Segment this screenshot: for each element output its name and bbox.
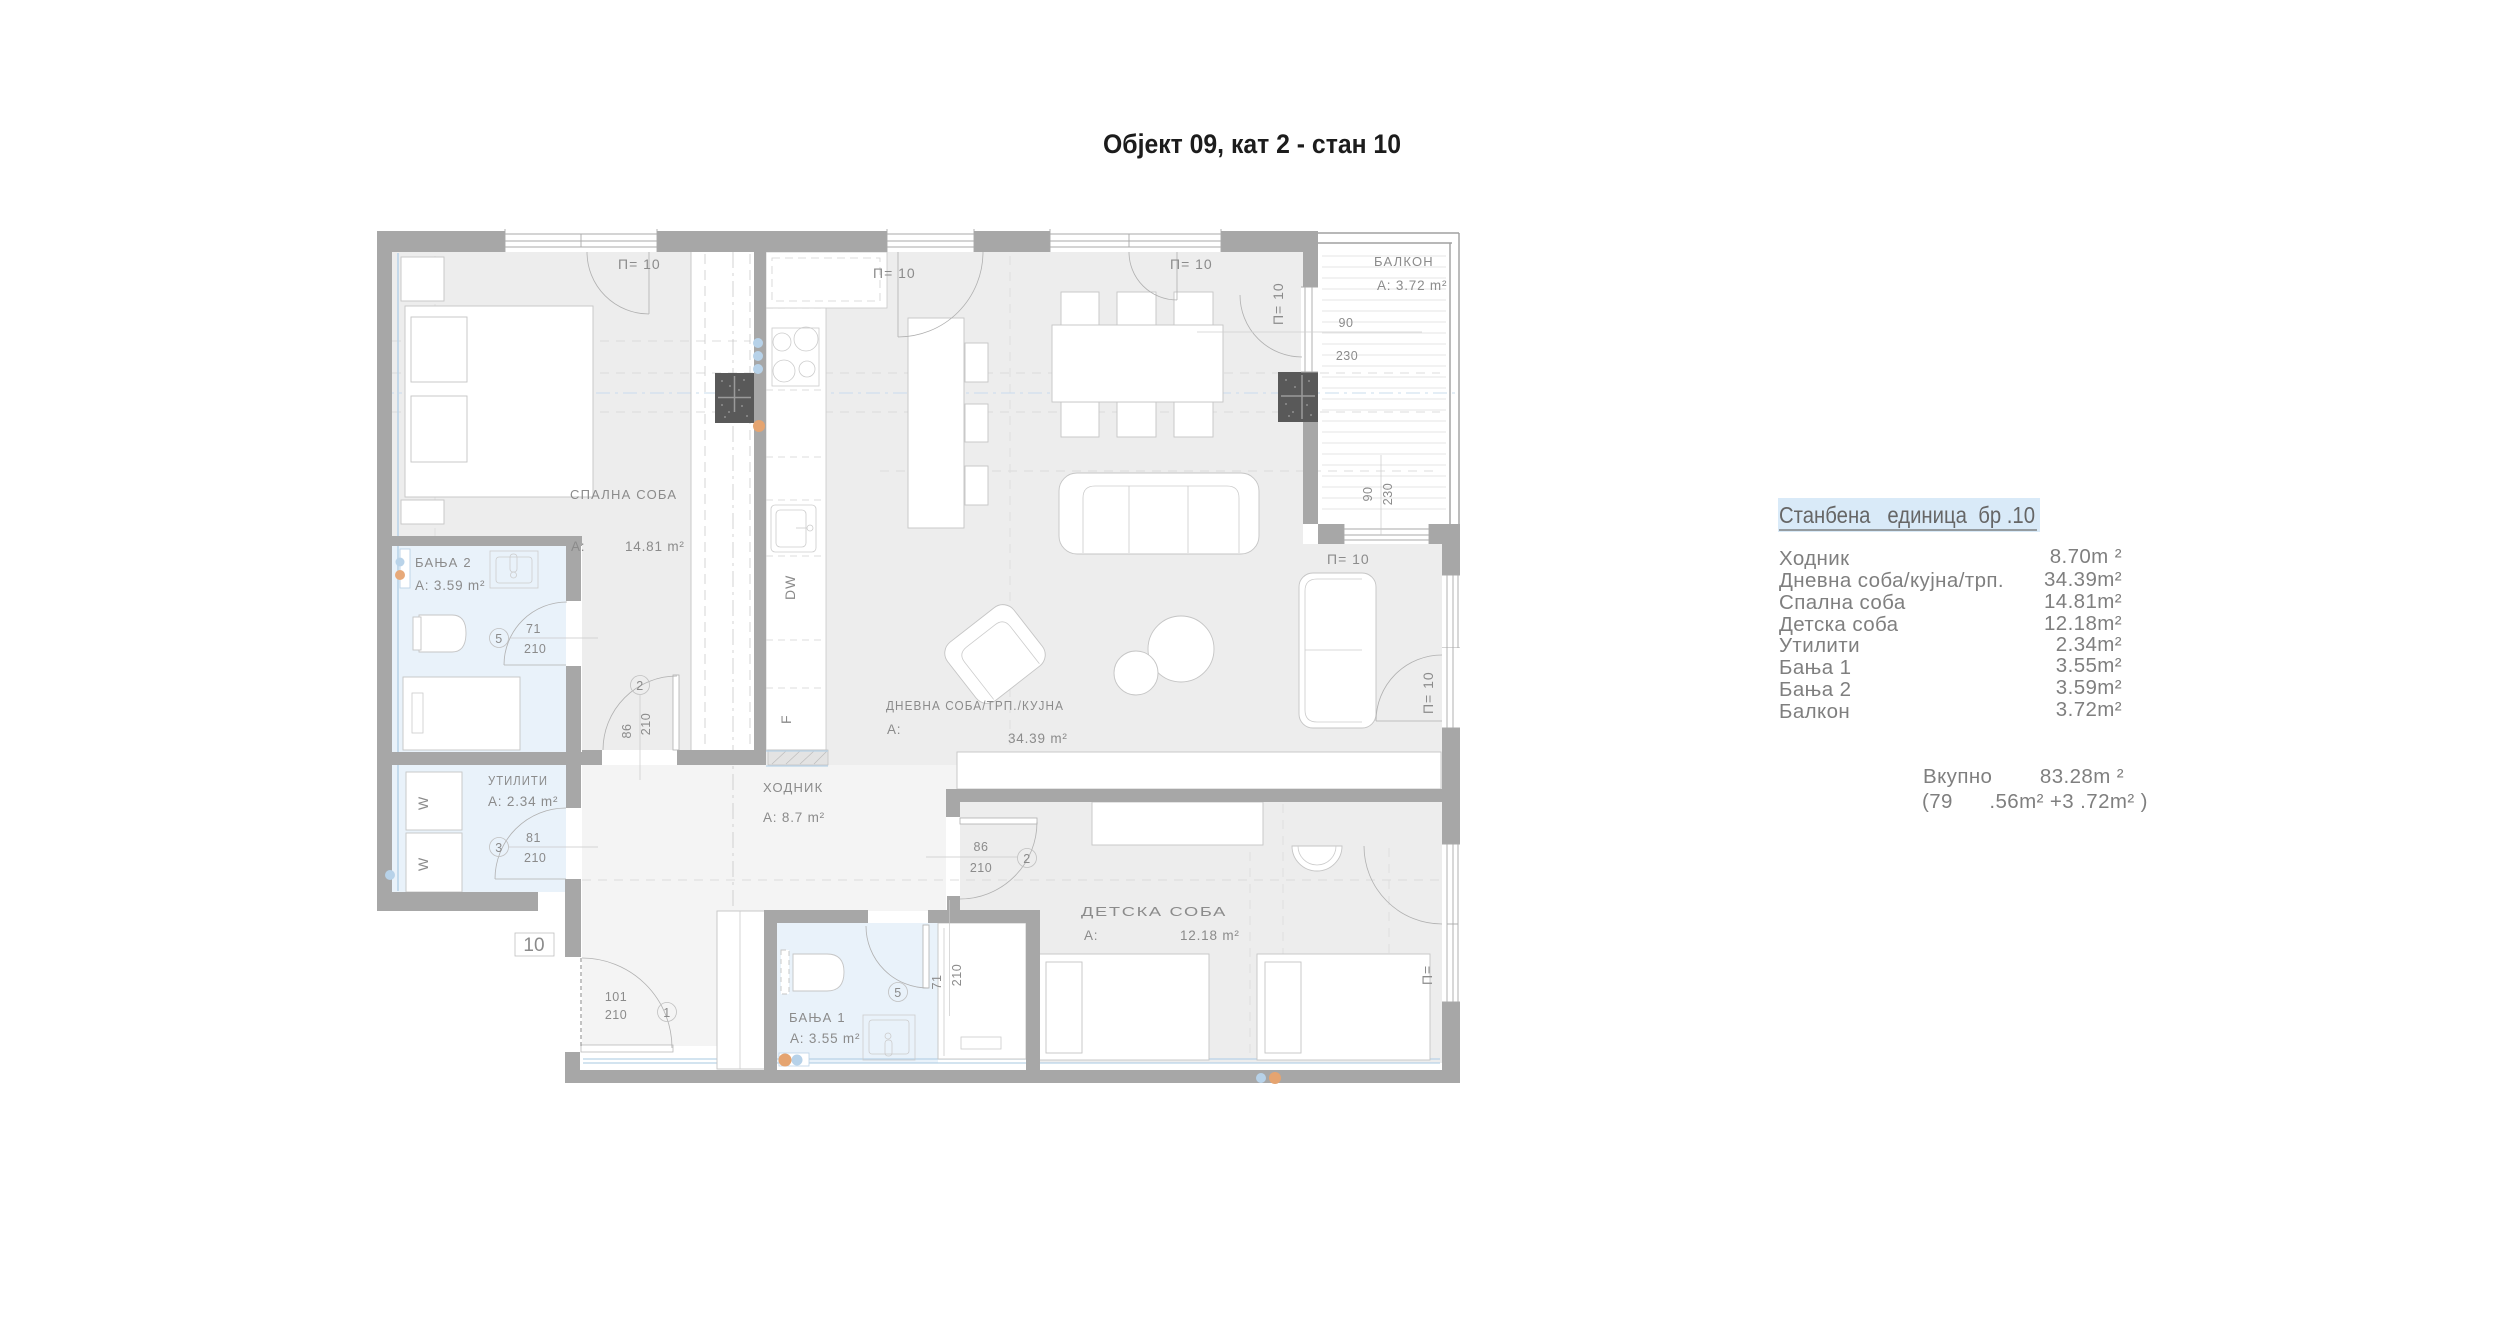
svg-text:230: 230 — [1336, 349, 1358, 363]
svg-text:Станбена единица бр .10: Станбена единица бр .10 — [1779, 502, 2035, 528]
svg-text:W: W — [415, 857, 431, 871]
svg-text:A: 3.59 m²: A: 3.59 m² — [415, 578, 485, 593]
svg-text:A: 8.7 m²: A: 8.7 m² — [763, 810, 825, 825]
svg-text:П= 10: П= 10 — [1170, 256, 1213, 272]
svg-text:86: 86 — [974, 840, 989, 854]
svg-text:A: 3.72 m²: A: 3.72 m² — [1377, 278, 1447, 293]
svg-text:210: 210 — [524, 642, 546, 656]
svg-text:СПАЛНА СОБА: СПАЛНА СОБА — [570, 487, 677, 502]
svg-text:DW: DW — [782, 575, 798, 600]
svg-text:A: 2.34 m²: A: 2.34 m² — [488, 794, 558, 809]
svg-text:210: 210 — [639, 713, 653, 735]
svg-text:90: 90 — [1361, 487, 1375, 502]
svg-text:Утилити: Утилити — [1779, 634, 1860, 657]
svg-text:5: 5 — [495, 632, 502, 646]
svg-text:БАЊА 2: БАЊА 2 — [415, 555, 472, 570]
svg-text:A:: A: — [1084, 928, 1098, 943]
svg-text:F: F — [778, 714, 794, 724]
svg-text:БАЊА 1: БАЊА 1 — [789, 1010, 846, 1025]
svg-text:5: 5 — [894, 986, 901, 1000]
svg-text:A:: A: — [887, 722, 901, 737]
svg-text:210: 210 — [970, 861, 992, 875]
svg-text:Спална соба: Спална соба — [1779, 591, 1906, 614]
svg-text:83.28m ²: 83.28m ² — [2040, 765, 2124, 788]
svg-text:П= 10: П= 10 — [1420, 671, 1436, 714]
svg-text:УТИЛИТИ: УТИЛИТИ — [488, 773, 548, 788]
svg-text:34.39m²: 34.39m² — [2044, 568, 2122, 591]
svg-text:ДНЕВНА СОБА/ТРП./КУЈНА: ДНЕВНА СОБА/ТРП./КУЈНА — [886, 698, 1064, 713]
svg-text:34.39 m²: 34.39 m² — [1008, 731, 1068, 746]
svg-text:10: 10 — [523, 935, 544, 956]
svg-text:Објект 09, кат 2 - стан 10: Објект 09, кат 2 - стан 10 — [1103, 129, 1401, 159]
svg-text:БАЛКОН: БАЛКОН — [1374, 254, 1434, 269]
svg-text:2: 2 — [636, 679, 643, 693]
svg-text:Бања 1: Бања 1 — [1779, 656, 1851, 679]
svg-text:14.81 m²: 14.81 m² — [625, 539, 685, 554]
svg-text:Детска соба: Детска соба — [1779, 613, 1899, 636]
svg-text:Балкон: Балкон — [1779, 700, 1850, 723]
svg-text:3: 3 — [495, 841, 502, 855]
svg-text:ХОДНИК: ХОДНИК — [763, 780, 823, 795]
svg-text:П= 10: П= 10 — [1327, 551, 1370, 567]
svg-text:90: 90 — [1339, 316, 1354, 330]
svg-text:2: 2 — [1023, 852, 1030, 866]
svg-text:П= 10: П= 10 — [873, 265, 916, 281]
svg-text:1: 1 — [663, 1006, 670, 1020]
svg-text:Дневна соба/кујна/трп.: Дневна соба/кујна/трп. — [1779, 569, 2004, 592]
svg-text:12.18m²: 12.18m² — [2044, 612, 2122, 635]
svg-text:3.59m²: 3.59m² — [2056, 676, 2122, 699]
svg-text:8.70m ²: 8.70m ² — [2050, 545, 2122, 568]
svg-text:2.34m²: 2.34m² — [2056, 633, 2122, 656]
svg-text:86: 86 — [620, 724, 634, 739]
svg-text:Бања 2: Бања 2 — [1779, 678, 1851, 701]
svg-text:A:: A: — [571, 539, 585, 554]
svg-text:14.81m²: 14.81m² — [2044, 590, 2122, 613]
svg-text:A: 3.55 m²: A: 3.55 m² — [790, 1031, 860, 1046]
svg-text:3.72m²: 3.72m² — [2056, 698, 2122, 721]
svg-text:71: 71 — [526, 622, 541, 636]
svg-text:101: 101 — [605, 990, 627, 1004]
svg-text:Вкупно: Вкупно — [1923, 765, 1992, 788]
svg-text:3.55m²: 3.55m² — [2056, 654, 2122, 677]
svg-text:ДЕТСКА СОБА: ДЕТСКА СОБА — [1081, 904, 1227, 919]
svg-text:П=: П= — [1419, 965, 1435, 985]
svg-text:210: 210 — [605, 1008, 627, 1022]
svg-text:W: W — [415, 796, 431, 810]
svg-text:230: 230 — [1381, 483, 1395, 505]
svg-text:П= 10: П= 10 — [618, 256, 661, 272]
svg-text:Ходник: Ходник — [1779, 547, 1850, 570]
svg-text:210: 210 — [524, 851, 546, 865]
svg-text:12.18 m²: 12.18 m² — [1180, 928, 1240, 943]
svg-text:П= 10: П= 10 — [1270, 282, 1286, 325]
svg-text:81: 81 — [526, 831, 541, 845]
svg-text:(79 .56m² +3 .72m² ): (79 .56m² +3 .72m² ) — [1922, 790, 2148, 813]
svg-text:71: 71 — [930, 975, 944, 990]
svg-text:210: 210 — [950, 964, 964, 986]
